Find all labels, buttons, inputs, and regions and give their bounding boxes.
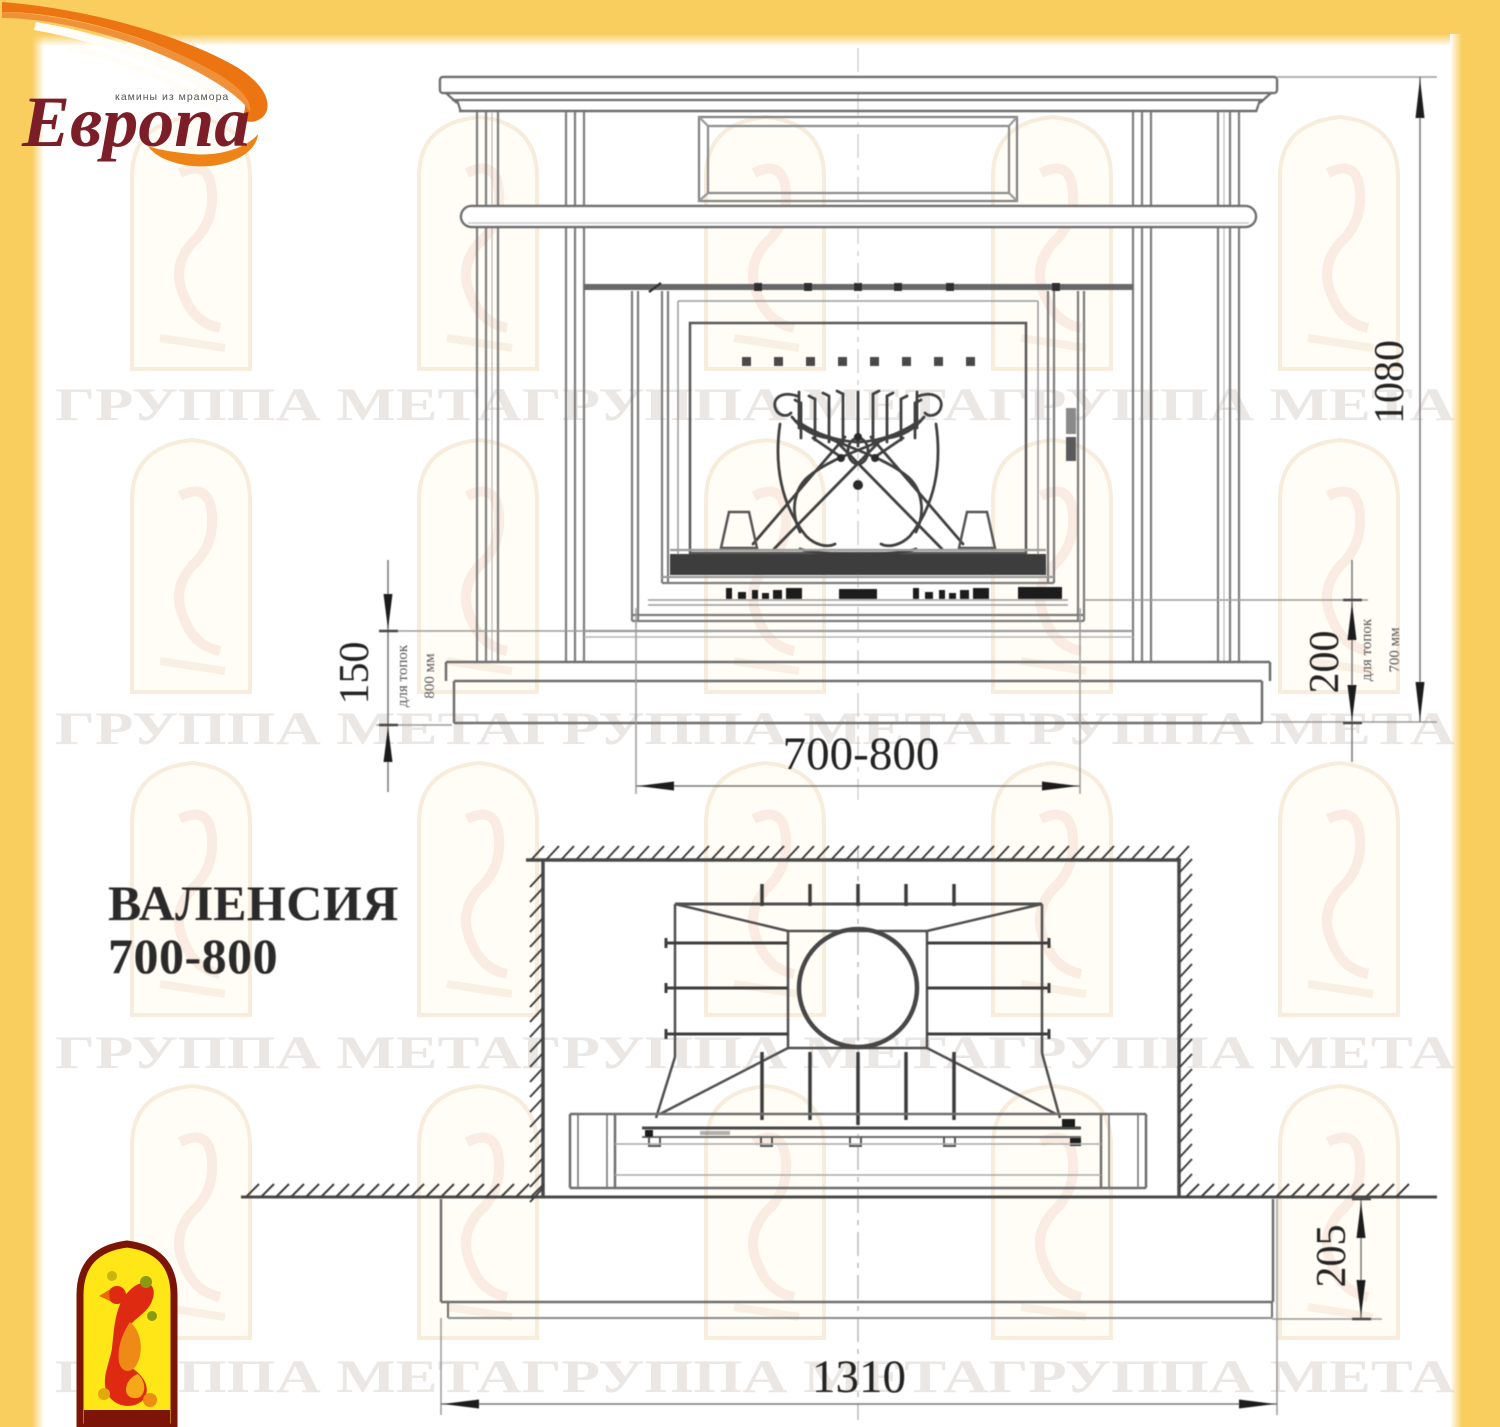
svg-text:1310: 1310 (812, 1351, 906, 1403)
svg-text:ГРУППА МЕТАГРУППА МЕТАГРУППА М: ГРУППА МЕТАГРУППА МЕТАГРУППА МЕТА (55, 379, 1455, 431)
svg-text:205: 205 (1309, 1225, 1355, 1288)
svg-text:для топок: для топок (395, 644, 411, 707)
svg-text:ГРУППА МЕТАГРУППА МЕТАГРУППА М: ГРУППА МЕТАГРУППА МЕТАГРУППА МЕТА (55, 703, 1455, 755)
svg-text:700-800: 700-800 (108, 928, 278, 984)
svg-text:700 мм: 700 мм (1387, 627, 1403, 673)
svg-text:1080: 1080 (1367, 340, 1413, 424)
svg-text:700-800: 700-800 (783, 728, 940, 780)
svg-text:800 мм: 800 мм (422, 653, 438, 699)
svg-text:200: 200 (1302, 631, 1348, 694)
svg-text:150: 150 (332, 642, 378, 705)
svg-text:ГРУППА МЕТАГРУППА МЕТАГРУППА М: ГРУППА МЕТАГРУППА МЕТАГРУППА МЕТА (55, 1351, 1455, 1403)
svg-text:ВАЛЕНСИЯ: ВАЛЕНСИЯ (108, 875, 399, 931)
svg-text:для топок: для топок (1359, 618, 1375, 681)
svg-text:камины из мрамора: камины из мрамора (115, 91, 229, 103)
